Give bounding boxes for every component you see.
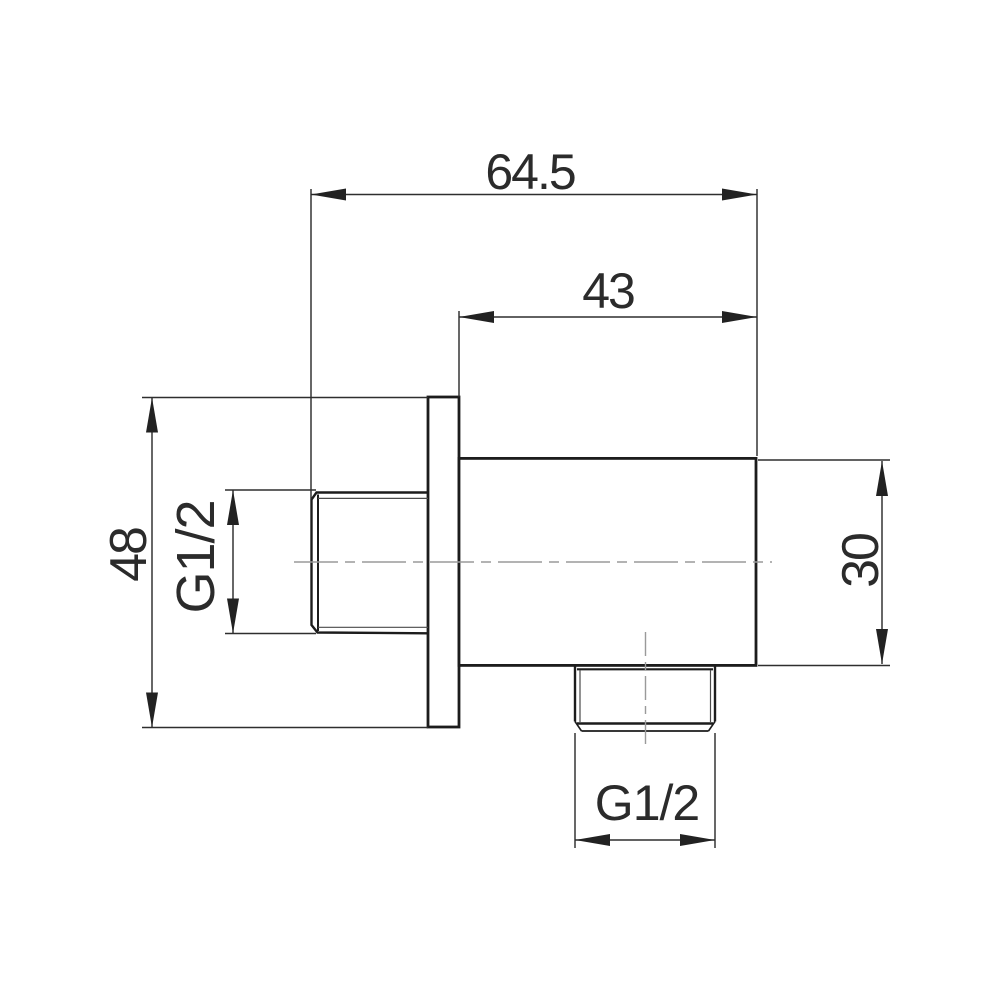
svg-text:43: 43 xyxy=(582,263,634,319)
svg-text:64.5: 64.5 xyxy=(485,144,575,200)
svg-text:48: 48 xyxy=(100,528,158,582)
svg-text:G1/2: G1/2 xyxy=(166,500,226,613)
svg-text:30: 30 xyxy=(832,534,890,588)
svg-text:G1/2: G1/2 xyxy=(595,775,699,831)
